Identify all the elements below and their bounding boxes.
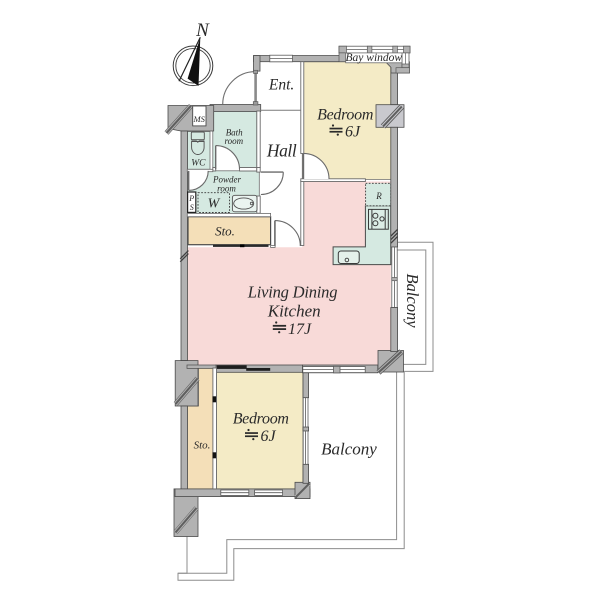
svg-text:room: room xyxy=(224,136,243,146)
svg-text:Bay window: Bay window xyxy=(346,52,403,64)
svg-text:Sto.: Sto. xyxy=(215,223,235,238)
svg-text:room: room xyxy=(217,183,236,193)
svg-text:P: P xyxy=(188,194,194,203)
svg-text:R: R xyxy=(375,191,382,201)
svg-text:W: W xyxy=(208,197,221,212)
svg-text:Sto.: Sto. xyxy=(194,440,211,452)
svg-text:Living Dining: Living Dining xyxy=(247,283,338,302)
svg-text:MS: MS xyxy=(193,114,206,124)
svg-text:Balcony: Balcony xyxy=(403,273,422,328)
svg-text:Bedroom: Bedroom xyxy=(233,411,289,428)
svg-text:6J: 6J xyxy=(345,123,361,140)
svg-text:Hall: Hall xyxy=(266,141,297,161)
svg-text:17J: 17J xyxy=(288,321,312,338)
svg-text:6J: 6J xyxy=(261,428,277,445)
svg-text:WC: WC xyxy=(191,159,206,169)
svg-text:N: N xyxy=(195,20,210,41)
svg-text:Ent.: Ent. xyxy=(268,77,294,94)
svg-text:Balcony: Balcony xyxy=(321,440,377,459)
svg-text:Kitchen: Kitchen xyxy=(267,302,321,321)
svg-text:Bedroom: Bedroom xyxy=(317,107,373,124)
svg-text:S: S xyxy=(190,203,194,212)
